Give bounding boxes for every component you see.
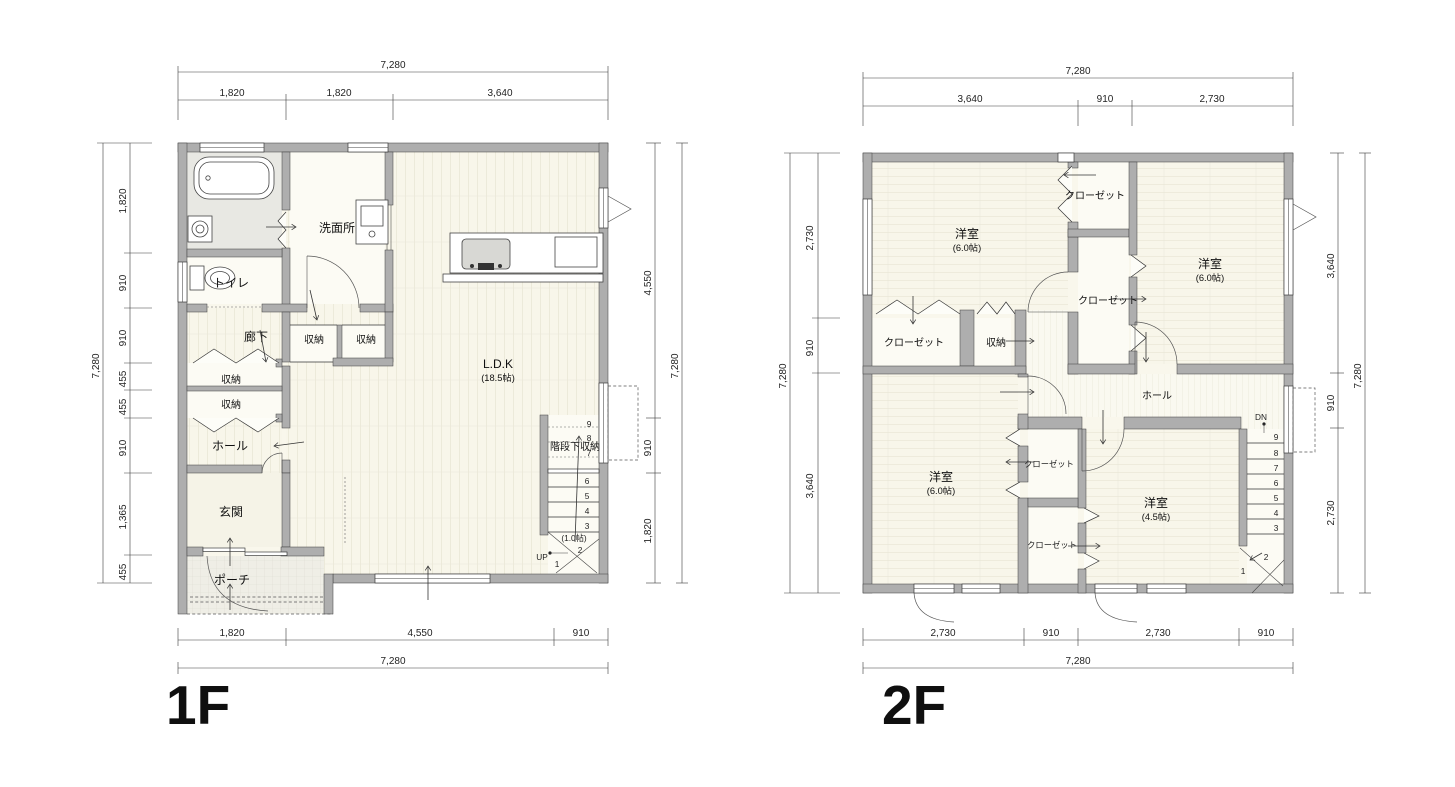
f1-dim-right-0: 4,550: [643, 270, 654, 295]
f1-dim-top-total: 7,280: [380, 60, 405, 71]
stair-step-8: 8: [1274, 448, 1279, 458]
window-swing: [1095, 593, 1137, 622]
storage-label: 収納: [221, 373, 241, 386]
bedroom-ne-size: (6.0帖): [1196, 272, 1224, 283]
balcony-outline: [1293, 388, 1315, 452]
closet-north-label: クローゼット: [1065, 190, 1125, 202]
f2-dim-bottom-1: 910: [1043, 628, 1060, 639]
entrance-label: 玄関: [219, 504, 243, 519]
bedroom-sw-label: 洋室: [929, 469, 953, 484]
f1-dim-left-3: 455: [118, 370, 129, 387]
f2-dim-left-0: 2,730: [805, 225, 816, 250]
washing-machine-icon: [188, 216, 212, 242]
bedroom-se-label: 洋室: [1144, 495, 1168, 510]
stair-size-label: (1.0帖): [561, 533, 587, 543]
stair-step-9: 9: [587, 419, 592, 429]
washroom-label: 洗面所: [319, 221, 355, 235]
floor-plan-2f: 7,280 3,640 910 2,730 7,280 2,730 910 3,…: [778, 66, 1371, 736]
stair-step-4: 4: [585, 506, 590, 516]
f1-dim-left-0: 1,820: [118, 188, 129, 213]
f1-dim-left-4: 455: [118, 398, 129, 415]
floor-plans-canvas: 7,280 1,820 1,820 3,640 7,280 1,820 910 …: [0, 0, 1455, 787]
f1-dim-top-2: 3,640: [487, 88, 512, 99]
f2-dim-bottom-2: 2,730: [1145, 628, 1170, 639]
f1-label: 1F: [166, 674, 230, 736]
closet-top-window: [1058, 153, 1074, 162]
porch-floor: [187, 556, 324, 614]
f1-dim-right-2: 1,820: [643, 518, 654, 543]
f1-dim-bottom-2: 910: [573, 628, 590, 639]
stair-step-5: 5: [1274, 493, 1279, 503]
toilet-label: トイレ: [213, 276, 249, 290]
storage-label: 収納: [304, 333, 324, 346]
f2-dim-left-2: 3,640: [805, 473, 816, 498]
f1-dim-left-total: 7,280: [91, 353, 102, 378]
stair-step-2: 2: [1264, 552, 1269, 562]
f2-dim-right-0: 3,640: [1326, 253, 1337, 278]
f1-dim-left-2: 910: [118, 329, 129, 346]
bedroom-se-size: (4.5帖): [1142, 511, 1170, 522]
bedroom-sw-size: (6.0帖): [927, 485, 955, 496]
floor-plan-sheet: 7,280 1,820 1,820 3,640 7,280 1,820 910 …: [0, 0, 1455, 787]
closet-sw-label: クローゼット: [1024, 459, 1074, 469]
stair-step-6: 6: [1274, 478, 1279, 488]
f2-dim-right-total: 7,280: [1353, 363, 1364, 388]
stair-step-1: 1: [1241, 566, 1246, 576]
entrance-door-panel: [245, 552, 287, 556]
f2-dim-top-1: 910: [1097, 94, 1114, 105]
bedroom-ne-label: 洋室: [1198, 256, 1222, 271]
up-label: UP: [536, 552, 548, 562]
stair-step-7: 7: [1274, 463, 1279, 473]
stair-step-6: 6: [585, 476, 590, 486]
stair-step-2: 2: [578, 545, 583, 555]
f1-dim-top-1: 1,820: [326, 88, 351, 99]
closet-nw-label: クローゼット: [884, 337, 944, 349]
porch-label: ポーチ: [214, 573, 250, 587]
f2-dim-top-2: 2,730: [1199, 94, 1224, 105]
dn-label: DN: [1255, 412, 1267, 422]
f1-dim-bottom-1: 4,550: [407, 628, 432, 639]
f2-dim-bottom-0: 2,730: [930, 628, 955, 639]
f1-dim-left-5: 910: [118, 439, 129, 456]
f1-dim-bottom-total: 7,280: [380, 656, 405, 667]
entrance-door-panel: [203, 548, 245, 552]
stair-step-3: 3: [1274, 523, 1279, 533]
window-swing: [914, 593, 954, 622]
stair-floor: [548, 415, 599, 574]
f2-dim-bottom-total: 7,280: [1065, 656, 1090, 667]
f2-dim-right-2: 2,730: [1326, 500, 1337, 525]
hall-floor: [1026, 310, 1068, 374]
f1-dim-right-total: 7,280: [670, 353, 681, 378]
f1-floors: [187, 152, 599, 614]
balcony-outline: [608, 386, 638, 460]
stair-step-5: 5: [585, 491, 590, 501]
f2-dim-bottom-3: 910: [1258, 628, 1275, 639]
floor-plan-1f: 7,280 1,820 1,820 3,640 7,280 1,820 910 …: [91, 60, 688, 736]
corridor-label: 廊下: [244, 329, 268, 344]
storage-label: 収納: [356, 333, 376, 346]
kitchen-counter-icon: [443, 233, 603, 282]
stair-step-4: 4: [1274, 508, 1279, 518]
f1-dim-left-6: 1,365: [118, 504, 129, 529]
stair-step-3: 3: [585, 521, 590, 531]
ldk-size-label: (18.5帖): [481, 372, 515, 383]
f2-dim-right-1: 910: [1326, 394, 1337, 411]
vanity-icon: [356, 200, 388, 244]
f1-dim-left-1: 910: [118, 274, 129, 291]
hall-label: ホール: [212, 439, 248, 453]
shutter-mark: [608, 196, 631, 222]
storage-label: 収納: [986, 336, 1006, 349]
f1-dim-top-0: 1,820: [219, 88, 244, 99]
f2-label: 2F: [882, 674, 946, 736]
storage-label: 収納: [221, 398, 241, 411]
f2-dim-left-total: 7,280: [778, 363, 789, 388]
stair-door: [548, 469, 599, 473]
understair-storage-label: 階段下収納: [550, 440, 600, 453]
bathtub-icon: [194, 157, 274, 199]
f2-dim-left-1: 910: [805, 339, 816, 356]
closet-mid-label: クローゼット: [1078, 295, 1138, 307]
f1-dim-left-7: 455: [118, 563, 129, 580]
shutter-mark: [1293, 204, 1316, 230]
f2-dim-top-total: 7,280: [1065, 66, 1090, 77]
bedroom-nw-label: 洋室: [955, 226, 979, 241]
f1-dim-bottom-0: 1,820: [219, 628, 244, 639]
ldk-label: L.D.K: [483, 357, 513, 371]
hall-label: ホール: [1142, 390, 1172, 402]
closet-se-label: クローゼット: [1027, 540, 1077, 550]
f2-dim-top-0: 3,640: [957, 94, 982, 105]
stair-step-9: 9: [1274, 432, 1279, 442]
bedroom-nw-size: (6.0帖): [953, 242, 981, 253]
f1-dim-right-1: 910: [643, 439, 654, 456]
stair-step-1: 1: [555, 559, 560, 569]
